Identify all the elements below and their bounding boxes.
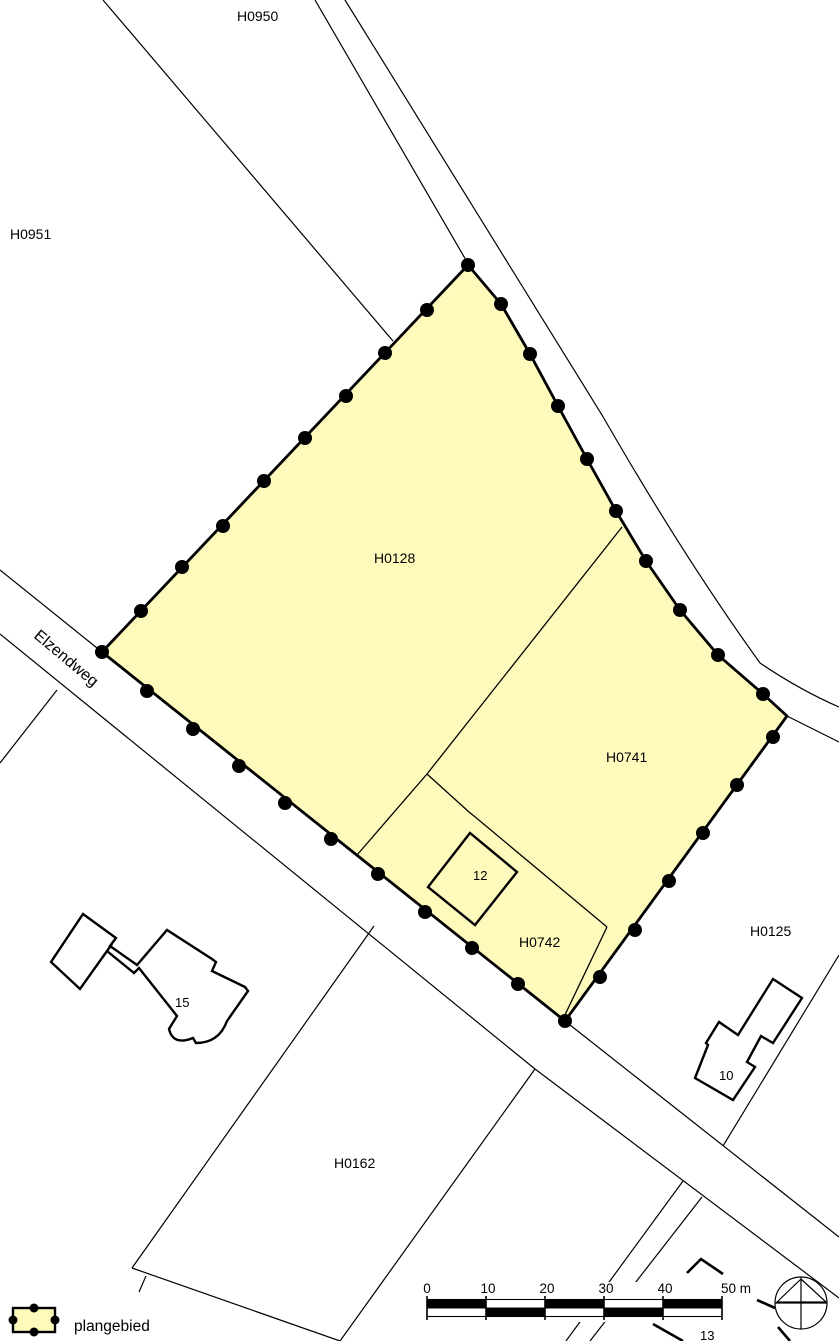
house-13-roof-corner: [687, 1259, 723, 1274]
house-10-outline: [695, 979, 802, 1100]
parcel-label-h0125: H0125: [750, 923, 791, 939]
boundary-dot: [95, 645, 109, 659]
boundary-dot: [257, 474, 271, 488]
boundary-dot: [593, 970, 607, 984]
house-number-15: 15: [175, 995, 189, 1010]
boundary-dot: [639, 554, 653, 568]
boundary-dot: [175, 560, 189, 574]
boundary-dot: [558, 1014, 572, 1028]
legend-plangebied-label: plangebied: [74, 1318, 150, 1335]
plangebied-polygon: [102, 265, 787, 1021]
street-label-elzendweg: Elzendweg: [30, 627, 101, 690]
boundary-dot: [216, 519, 230, 533]
boundary-dot: [278, 796, 292, 810]
house-15-outline: [51, 914, 248, 1043]
boundary-dot: [371, 867, 385, 881]
scale-label-40: 40: [657, 1281, 672, 1296]
boundary-dot: [232, 759, 246, 773]
boundary-dot: [662, 874, 676, 888]
boundary-dot: [418, 905, 432, 919]
legend: plangebied: [9, 1304, 150, 1337]
parcel-label-h0742: H0742: [519, 934, 560, 950]
boundary-tick: [139, 1276, 146, 1292]
boundary-dot: [580, 452, 594, 466]
boundary-dot: [551, 399, 565, 413]
boundary-dot: [378, 346, 392, 360]
road-edge-east: [787, 716, 839, 742]
scale-label-0: 0: [423, 1281, 431, 1296]
boundary-dot: [609, 504, 623, 518]
boundary-dot: [420, 303, 434, 317]
boundary-dot: [523, 347, 537, 361]
boundary-dot: [511, 977, 525, 991]
boundary-dot: [756, 687, 770, 701]
house-number-13: 13: [700, 1328, 714, 1341]
boundary-dot: [730, 778, 744, 792]
boundary-dot: [298, 431, 312, 445]
parcel-label-h0950: H0950: [237, 8, 278, 24]
boundary-dot: [186, 722, 200, 736]
scale-label-50m: 50 m: [721, 1281, 751, 1296]
boundary-dot: [465, 941, 479, 955]
boundary-dot: [134, 604, 148, 618]
parcel-line-west: [0, 690, 57, 763]
boundary-dot: [140, 684, 154, 698]
scale-label-10: 10: [480, 1281, 495, 1296]
scale-label-20: 20: [539, 1281, 554, 1296]
plan-map: 0 10 20 30 40 50 m plangebied H0950 H095…: [0, 0, 839, 1341]
boundary-dot: [461, 258, 475, 272]
parcel-label-h0951: H0951: [10, 226, 51, 242]
north-arrow: [775, 1277, 827, 1329]
parcel-line-h0950-h0951: [103, 0, 393, 341]
boundary-dot: [628, 923, 642, 937]
parcel-line-h0162-left: [132, 926, 374, 1268]
house-number-12: 12: [473, 868, 487, 883]
boundary-dot: [696, 826, 710, 840]
boundary-dot: [494, 297, 508, 311]
boundary-dot: [673, 603, 687, 617]
scale-label-30: 30: [598, 1281, 613, 1296]
boundary-dot: [766, 730, 780, 744]
boundary-dot: [339, 389, 353, 403]
parcel-line-h0162-bottom: [132, 1268, 340, 1341]
boundary-dot: [324, 832, 338, 846]
parcel-label-h0162: H0162: [334, 1155, 375, 1171]
parcel-label-h0128: H0128: [374, 550, 415, 566]
house-number-10: 10: [719, 1068, 733, 1083]
house-13-wall-b: [757, 1300, 775, 1308]
boundary-dot: [711, 648, 725, 662]
house-13-wall-c: [778, 1327, 790, 1341]
house-13-wall-a: [653, 1324, 683, 1341]
parcel-label-h0741: H0741: [606, 749, 647, 765]
elzendweg-se-upper-edge: [565, 1021, 839, 1237]
road-edge-north-a: [315, 0, 470, 267]
